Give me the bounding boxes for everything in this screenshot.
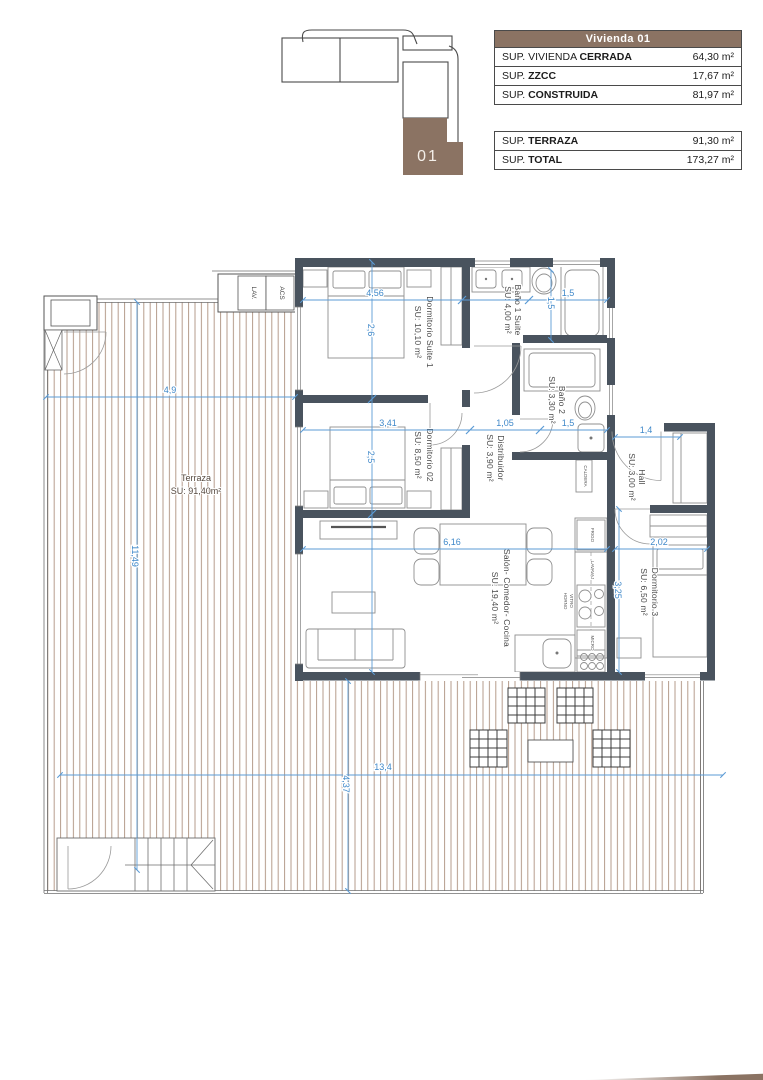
dim-suite1-width: 4,56 (366, 288, 384, 298)
dim-dorm3-width: 2,02 (650, 537, 668, 547)
svg-text:Dormitorio 02: Dormitorio 02 (425, 428, 435, 482)
svg-text:Hall: Hall (637, 469, 647, 484)
caldera-label: CALDERA (583, 465, 588, 486)
lav-closet-label: LAV. (250, 286, 257, 299)
dim-dorm2-width: 3,41 (379, 418, 397, 428)
bath1-label: Baño 1 Suite SU: 4,00 m² (503, 284, 523, 335)
window (295, 427, 303, 506)
utility-closets: LAV. ACS (212, 271, 298, 312)
acs-closet-label: ACS (278, 286, 285, 300)
svg-text:SU: 91,40m²: SU: 91,40m² (171, 486, 222, 496)
svg-text:SU: 3,30 m²: SU: 3,30 m² (547, 376, 557, 424)
distribuidor-label: Distribuidor SU: 3,90 m² (485, 434, 506, 482)
window (607, 385, 615, 415)
dim-bath2-width: 1,5 (562, 418, 575, 428)
svg-text:SU: 3,90 m²: SU: 3,90 m² (485, 434, 495, 482)
vitro-label: VITRO (569, 594, 574, 608)
unit-number-label: 01 (417, 148, 439, 165)
window (645, 672, 700, 681)
dim-terrace-width: 4,9 (164, 385, 177, 395)
dim-terrace-bottom-depth: 4,37 (341, 775, 351, 793)
svg-text:SU: 6,50 m²: SU: 6,50 m² (639, 568, 649, 616)
window (553, 258, 600, 267)
dishwasher-label: LAVAVAJ (590, 561, 595, 579)
nightstand (617, 638, 641, 658)
window (475, 258, 510, 267)
svg-text:SU: 19,40 m²: SU: 19,40 m² (490, 572, 500, 624)
highlighted-unit (403, 118, 463, 175)
svg-text:SU: 4,00 m²: SU: 4,00 m² (503, 286, 513, 334)
dim-distribuidor-width: 1,05 (496, 418, 514, 428)
dim-hall-width: 1,4 (640, 425, 653, 435)
dim-bath-length: 1,5 (562, 288, 575, 298)
window (295, 554, 303, 664)
dim-terrace-bottom-width: 13,4 (374, 762, 392, 772)
bed (653, 545, 707, 657)
stairs (57, 838, 215, 891)
svg-text:Dormitorio Suite 1: Dormitorio Suite 1 (425, 296, 435, 368)
svg-text:Terraza: Terraza (181, 473, 211, 483)
fridge-label: FRIGO (590, 528, 595, 543)
svg-text:Baño 1 Suite: Baño 1 Suite (513, 284, 523, 335)
svg-text:Distribuidor: Distribuidor (496, 435, 506, 480)
dim-suite1-height: 2,6 (366, 324, 376, 337)
svg-text:SU: 3,00 m²: SU: 3,00 m² (627, 453, 637, 501)
floor-plan-drawing: 01 LAV. ACS (0, 0, 763, 1080)
sliding-door (420, 672, 520, 681)
svg-text:Baño 2: Baño 2 (557, 386, 567, 414)
oven-label: HORNO (563, 593, 568, 610)
plan-sheet: { "colors": { "accent_brown": "#8b7363",… (0, 0, 763, 1080)
svg-text:Salón- Comedor- Cocina: Salón- Comedor- Cocina (502, 549, 512, 647)
dim-dorm3-height: 3,25 (613, 581, 623, 599)
dorm3-label: Dormitorio 3 SU: 6,50 m² (639, 568, 660, 617)
dim-bath-length-v: 1,5 (546, 297, 556, 310)
window (607, 308, 615, 338)
svg-text:SU: 8,50 m²: SU: 8,50 m² (413, 431, 423, 479)
micro-label: MICRO (590, 636, 595, 651)
key-plan: 01 (282, 30, 463, 175)
dim-terrace-height: 11,49 (130, 545, 140, 567)
svg-text:Dormitorio 3: Dormitorio 3 (650, 568, 660, 617)
dim-dorm2-height: 2,5 (366, 451, 376, 464)
svg-text:SU: 10,10 m²: SU: 10,10 m² (413, 306, 423, 358)
outdoor-table (528, 740, 573, 762)
dim-salon-width: 6,16 (443, 537, 461, 547)
window (295, 307, 303, 390)
